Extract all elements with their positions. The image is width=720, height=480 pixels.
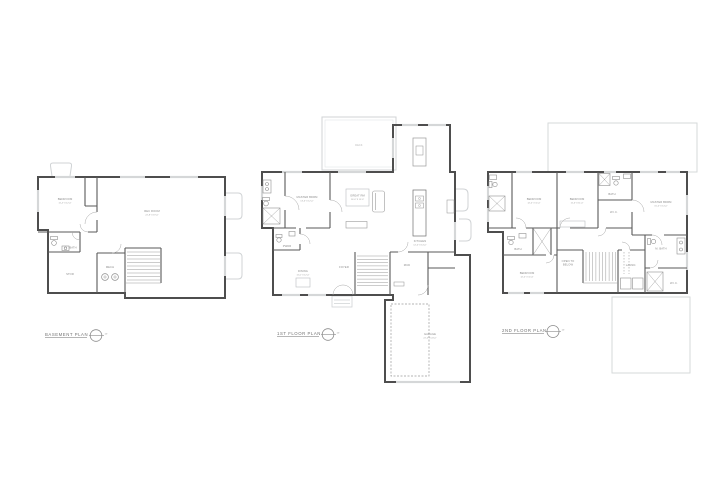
- room-label-dining: DINING: [298, 269, 308, 273]
- room-dims-bedroom3: 11'-6" X 11'-0": [571, 203, 584, 205]
- faucet-icon: [419, 205, 421, 207]
- sink-basin-icon: [419, 198, 421, 200]
- toilet-tank: [263, 198, 270, 201]
- window-glass-lines: [262, 125, 460, 382]
- bath2-fixtures: [599, 174, 631, 186]
- scale-note: 1/4": [105, 334, 109, 336]
- scale-note: 1/4": [562, 330, 566, 332]
- mechanical-equipment: [102, 274, 119, 281]
- dresser: [560, 221, 585, 227]
- shower-x-icon: [599, 174, 610, 186]
- room-label-mech: MECH: [106, 265, 114, 269]
- toilet-tank: [51, 237, 58, 240]
- room-label-bedroom4: BEDROOM: [520, 271, 535, 275]
- sink: [416, 203, 424, 208]
- dining-table: [296, 278, 310, 287]
- shower-x-icon: [489, 196, 505, 211]
- washer-icon: [621, 278, 632, 289]
- master-bath-fixtures: [263, 180, 281, 224]
- room-label-kitchen: KITCHEN: [414, 239, 427, 243]
- room-label-deck: DECK: [355, 144, 363, 147]
- dryer-icon: [633, 278, 644, 289]
- kitchen-island: [413, 190, 426, 236]
- room-label-bath2: BATH: [608, 192, 615, 196]
- vanity: [677, 238, 685, 254]
- vanity: [263, 180, 271, 193]
- room-dims-rec-room: 22'-8" X 19'-6": [145, 215, 158, 217]
- media-console: [346, 222, 367, 229]
- toilet-icon: [264, 201, 269, 206]
- stairs: [125, 252, 161, 283]
- roof-outline: [548, 123, 697, 172]
- bath-fixtures: [51, 237, 70, 251]
- shower-x-icon: [647, 272, 663, 291]
- sink: [416, 196, 424, 201]
- room-label-bedroom3: BEDROOM: [570, 197, 585, 201]
- room-label-mud: MUD: [404, 263, 410, 267]
- sink-basin-icon: [680, 248, 683, 251]
- room-label-open-to-below-1: OPEN TO: [562, 259, 575, 263]
- basement-plan: BEDROOM 11'-4" X 12'-0" REC ROOM 22'-8" …: [38, 163, 242, 341]
- stairs: [583, 252, 618, 283]
- room-label-bedroom: BEDROOM: [58, 197, 73, 201]
- windows: [262, 125, 460, 382]
- toilet-icon: [651, 239, 655, 243]
- toilet-icon: [509, 240, 513, 244]
- second-floor-title-block: 2ND FLOOR PLAN 1/4": [502, 326, 565, 338]
- window-seat: [456, 189, 468, 211]
- sink: [519, 234, 526, 239]
- porch-steps: [332, 296, 352, 307]
- closet-x-icon: [533, 228, 551, 255]
- plan-title-second-floor: 2ND FLOOR PLAN: [502, 328, 547, 333]
- powder-fixtures: [276, 232, 295, 243]
- garage-dashed-line: [391, 304, 429, 376]
- sink-basin-icon: [266, 183, 269, 186]
- window-well: [226, 253, 242, 279]
- area-rug: [346, 189, 369, 206]
- second-floor-plan: BEDROOM 12'-0" X 11'-0" BEDROOM 11'-6" X…: [488, 123, 697, 373]
- windows: [38, 177, 225, 276]
- window-seat: [459, 219, 471, 241]
- room-label-bath3: BATH: [514, 247, 521, 251]
- sofa: [373, 191, 385, 212]
- room-label-open-to-below-2: BELOW: [563, 262, 574, 266]
- refrigerator: [447, 200, 454, 213]
- room-dims-master: 13'-6" X 12'-0": [300, 201, 313, 203]
- toilet-tank: [489, 182, 492, 188]
- shower-x-icon: [263, 208, 280, 224]
- room-label-master-bedroom: MASTER BDRM: [651, 200, 673, 204]
- scale-note: 1/4": [337, 333, 341, 335]
- mud-bench: [394, 282, 404, 286]
- sink: [289, 232, 295, 237]
- first-floor-plan: DECK: [262, 117, 471, 382]
- laundry-chute-dashed: [624, 252, 629, 274]
- window-well: [226, 193, 242, 219]
- room-dims-bedroom: 11'-4" X 12'-0": [59, 203, 72, 205]
- laundry-fixtures: [621, 252, 644, 289]
- dining-counter: [413, 138, 426, 166]
- plan-title-first-floor: 1ST FLOOR PLAN: [277, 331, 321, 336]
- room-label-bedroom2: BEDROOM: [527, 197, 542, 201]
- windows: [488, 172, 687, 293]
- window-glass-lines: [38, 177, 225, 276]
- basement-title-block: BASEMENT PLAN 1/4": [45, 330, 108, 342]
- room-label-foyer: FOYER: [339, 265, 349, 269]
- room-label-wic: W.I.C.: [610, 210, 618, 214]
- toilet-icon: [614, 181, 618, 185]
- room-label-storage: STOR: [66, 272, 74, 276]
- range-icon: [416, 146, 423, 155]
- toilet-icon: [277, 238, 281, 242]
- sink-basin-icon: [64, 247, 67, 250]
- roof-outline: [612, 297, 690, 373]
- floor-plans-drawing: BEDROOM 11'-4" X 12'-0" REC ROOM 22'-8" …: [0, 0, 720, 480]
- door-swings: [285, 196, 428, 295]
- room-label-powder: PWDR: [283, 244, 292, 248]
- toilet-icon: [493, 182, 497, 186]
- room-label-wic2: W.I.C.: [670, 281, 678, 285]
- first-floor-title-block: 1ST FLOOR PLAN 1/4": [277, 329, 340, 341]
- window-well: [50, 163, 71, 176]
- room-label-master: MASTER BDRM: [297, 195, 319, 199]
- room-label-rec-room: REC ROOM: [144, 209, 160, 213]
- room-label-bath: BATH: [69, 246, 76, 250]
- master-bath-fixtures: [647, 238, 685, 291]
- room-label-great-room: GREAT RM: [350, 194, 365, 198]
- toilet-tank: [648, 239, 651, 245]
- room-dims-kitchen: 12'-0" X 14'-0": [413, 245, 426, 247]
- room-dims-great-room: 16'-0" X 15'-0": [351, 199, 364, 201]
- toilet-tank: [613, 177, 620, 180]
- room-dims-master-bedroom: 15'-0" X 14'-0": [654, 206, 667, 208]
- toilet-tank: [276, 235, 282, 238]
- sink: [490, 175, 497, 180]
- room-dims-garage: 22'-0" X 24'-0": [423, 338, 436, 340]
- window-glass-lines: [488, 172, 687, 293]
- room-label-laundry: LAUND.: [626, 263, 637, 267]
- sink-basin-icon: [680, 241, 683, 244]
- room-dims-bedroom2: 12'-0" X 11'-0": [528, 203, 541, 205]
- architectural-sheet: BEDROOM 11'-4" X 12'-0" REC ROOM 22'-8" …: [0, 0, 720, 480]
- exterior-wall: [488, 172, 687, 293]
- room-dims-dining: 11'-0" X 12'-0": [297, 275, 310, 277]
- sink: [624, 174, 631, 179]
- exterior-wall: [262, 125, 470, 382]
- toilet-icon: [52, 241, 57, 246]
- stairs: [357, 256, 388, 286]
- room-dims-bedroom4: 12'-0" X 11'-6": [521, 277, 534, 279]
- room-label-master-bath: M. BATH: [655, 247, 666, 251]
- room-label-garage: GARAGE: [424, 332, 436, 336]
- plan-title-basement: BASEMENT PLAN: [45, 332, 88, 337]
- toilet-tank: [508, 237, 515, 240]
- door-swings: [516, 200, 662, 268]
- hall-bath-fixtures: [489, 175, 505, 211]
- sink-basin-icon: [266, 188, 269, 191]
- interior-walls: [488, 172, 687, 293]
